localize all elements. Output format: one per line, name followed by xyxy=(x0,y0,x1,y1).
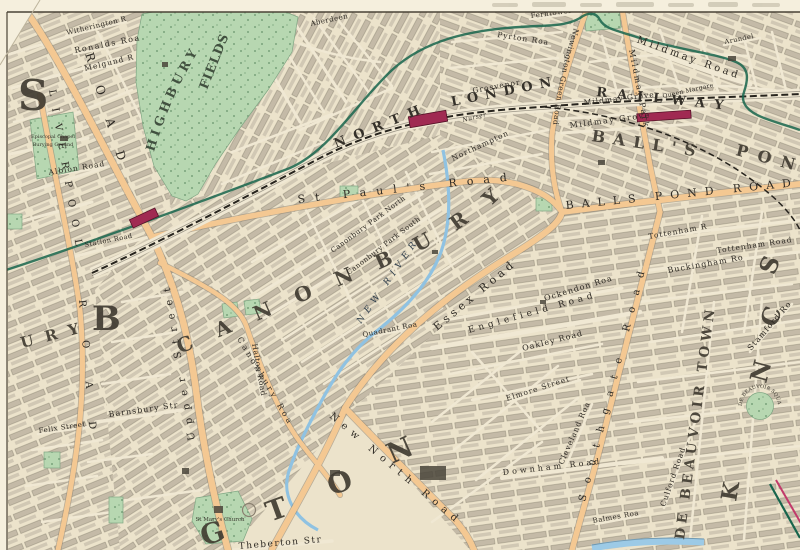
chapel-label-1: Episcopal Chapel xyxy=(31,134,75,140)
margin-ghost-marks xyxy=(492,2,780,7)
district-letter-s: S xyxy=(18,71,48,120)
map-canvas[interactable]: S B URY CANONBURY BALL'S PON DE BEAUVOIR… xyxy=(0,0,800,550)
de-beauvoir-square-park xyxy=(747,393,774,420)
district-letter-b: B xyxy=(92,299,121,339)
map-svg: S B URY CANONBURY BALL'S PON DE BEAUVOIR… xyxy=(0,0,800,550)
chapel-label-2: Burying Ground xyxy=(33,142,75,148)
label-st-marys-church: St Mary's Church xyxy=(195,517,244,523)
